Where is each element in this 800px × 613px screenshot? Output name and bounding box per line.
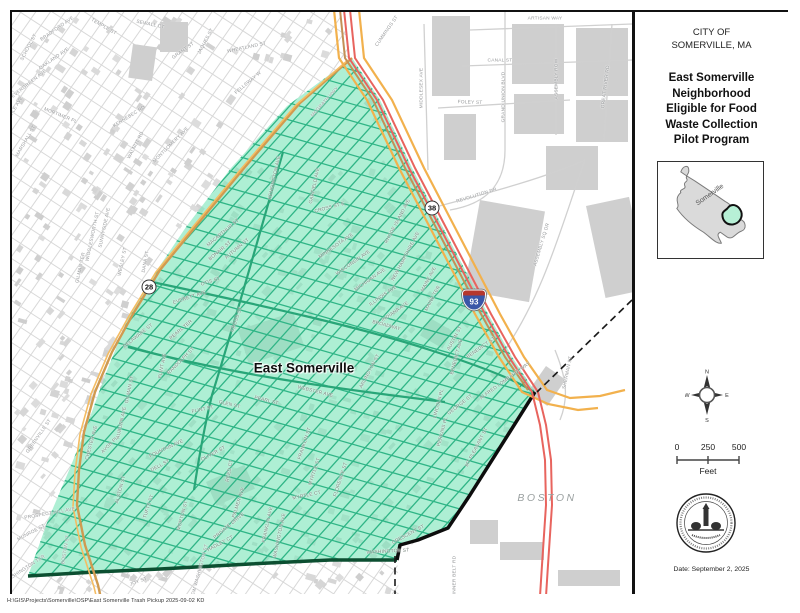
- street-label: ALFRED LOMBARDI WAY: [480, 362, 532, 402]
- street-label: GARFIELD AVE: [310, 168, 322, 205]
- street-label: CRESCENT ST: [392, 525, 426, 546]
- street-label: FOLEY ST: [458, 101, 483, 107]
- street-label: MORTON ST: [178, 501, 191, 532]
- inset-locator-map: Somerville: [657, 161, 764, 259]
- street-label: RANDOLPH ST: [167, 347, 196, 376]
- route-shield-38: 38: [425, 201, 440, 216]
- street-label: DELAWARE ST: [123, 324, 155, 350]
- scale-bar: 0 250 500 Feet: [663, 438, 755, 481]
- map-canvas: East Somerville BOSTON SCHOOL STBRADFORD…: [12, 12, 632, 594]
- street-label: AVON PL: [102, 437, 121, 456]
- street-label: CHESTER AVE: [86, 425, 100, 460]
- street-label: WHEATLAND ST: [227, 43, 267, 56]
- street-label: FLINT ST: [192, 406, 215, 415]
- street-label: SEWALL CT: [135, 21, 164, 32]
- street-label: KENNEBEC RD: [113, 106, 147, 130]
- map-sheet: East Somerville BOSTON SCHOOL STBRADFORD…: [0, 0, 800, 613]
- svg-text:0: 0: [675, 442, 680, 452]
- street-label: MARSHALL ST: [16, 125, 38, 158]
- map-title: East Somerville Neighborhood Eligible fo…: [635, 71, 788, 149]
- street-label: GRAND UNION BLVD: [503, 72, 508, 123]
- street-label: MICHIGAN AVE: [355, 269, 388, 294]
- area-label: East Somerville: [254, 361, 355, 376]
- street-label: ILLINOIS AVE: [369, 286, 398, 309]
- street-label: OTIS ST: [201, 278, 222, 289]
- street-label: MYRTLE ST: [309, 458, 322, 487]
- street-label: FELLSWAY W: [235, 72, 263, 97]
- compass-e: E: [725, 393, 729, 399]
- street-label: PERKINS PL: [438, 417, 450, 447]
- boston-label: BOSTON: [517, 492, 576, 504]
- street-label: DELL ST: [151, 460, 172, 474]
- street-label: BOSTON ST: [62, 535, 72, 565]
- street-label: ASSEMBLY ROW: [556, 59, 561, 100]
- street-label: WISCONSIN AVE: [336, 250, 372, 277]
- street-label: GREAT RIVER RD: [602, 65, 612, 108]
- street-label: TEMPLE ST: [89, 19, 116, 37]
- street-label: WALNUT RD: [128, 132, 146, 161]
- compass-rose: N S W E: [685, 369, 729, 428]
- street-label: ASSEMBLY SQ DR: [534, 223, 552, 267]
- street-label: MYRTLE CT: [292, 492, 321, 503]
- street-label: WEBSTER AVE: [297, 386, 333, 399]
- street-label: GILMAN TER: [76, 252, 87, 284]
- street-label: PROSPECT HILL AVE: [24, 508, 75, 522]
- city-line-1: CITY OF: [635, 26, 788, 39]
- city-seal: [674, 491, 738, 560]
- street-label: AUBURN AVE: [117, 407, 128, 440]
- date-label: Date: September 2, 2025: [635, 566, 788, 573]
- compass-w: W: [685, 393, 690, 399]
- street-label: FOUNTAIN AVE: [149, 440, 184, 460]
- street-label: ARTISAN WAY: [528, 18, 563, 23]
- svg-text:250: 250: [701, 442, 715, 452]
- panel-city: CITY OF SOMERVILLE, MA: [635, 26, 788, 52]
- street-label: MIDDLESEX AVE: [421, 68, 426, 109]
- route-shield-93: 93: [463, 291, 485, 310]
- street-label: MORTIMER PL: [43, 108, 78, 126]
- street-label: ARLINGTON ST: [360, 354, 382, 390]
- street-label: INDIANA AVE: [382, 302, 411, 324]
- street-label: WASHINGTON ST: [366, 549, 409, 556]
- street-label: GILMAN ST: [126, 376, 136, 404]
- street-label: MT PLEASANT ST: [466, 428, 491, 469]
- street-label: WASHINGTON AVE: [274, 513, 288, 559]
- street-label: BENEDICT ST: [467, 337, 497, 360]
- street-label: REVOLUTION DR: [456, 189, 498, 206]
- street-label: WESLEY ST: [119, 247, 130, 277]
- street-label: NEW HAMPSHIRE AVE: [392, 232, 422, 283]
- street-label: MAINE TER: [425, 286, 442, 313]
- map-labels-layer: East Somerville BOSTON SCHOOL STBRADFORD…: [12, 12, 632, 594]
- street-label: EVERETT AVE: [173, 291, 207, 306]
- street-label: TUFTS ST: [144, 495, 156, 520]
- street-label: BROADWAY: [371, 321, 400, 333]
- street-label: MCGRATH HWY: [311, 87, 340, 119]
- street-label: WIGGLESWORTH ST: [86, 212, 101, 263]
- street-label: ALSTON ST: [116, 476, 128, 505]
- street-label: OLIVER ST: [201, 447, 227, 464]
- street-label: BRADFORD AVE: [40, 17, 75, 44]
- title-panel: CITY OF SOMERVILLE, MA East Somerville N…: [632, 12, 788, 594]
- street-label: KENSINGTON AVE: [269, 156, 283, 201]
- street-label: GLEN ST: [218, 401, 240, 411]
- street-label: CROSS ST E: [314, 203, 345, 216]
- street-label: LINCOLN PL: [434, 389, 446, 419]
- street-label: GREENVILLE ST: [27, 419, 54, 455]
- street-label: WASHINGTON TER: [12, 555, 47, 584]
- scale-unit: Feet: [699, 466, 717, 476]
- street-label: FRANKLIN ST: [299, 427, 314, 460]
- street-label: INNER BELT RD: [454, 556, 459, 594]
- street-label: REED CT: [227, 460, 236, 483]
- street-label: MONTGOMERY AVE: [153, 127, 191, 165]
- street-label: JOY ST: [130, 578, 148, 589]
- compass-n: N: [705, 370, 709, 376]
- street-label: FLORENCE ST: [334, 462, 350, 498]
- street-label: GEORGE ST: [448, 395, 475, 417]
- street-label: FRANKLIN AVE: [263, 507, 275, 544]
- street-label: RHODE ISLAND AVE: [385, 199, 412, 245]
- route-shield-28: 28: [142, 280, 157, 295]
- street-label: DANA ST: [143, 251, 152, 273]
- street-label: HADLEY CT: [207, 536, 235, 554]
- file-path-text: H:\GIS\Projects\Somerville\OSP\East Some…: [7, 598, 204, 604]
- street-label: SCHOOL ST: [21, 34, 39, 62]
- street-label: SHERMAN ST: [563, 356, 575, 390]
- street-label: GRANT ST: [172, 43, 196, 62]
- street-label: CUMMINGS ST: [376, 16, 401, 48]
- street-label: FLINT AVE: [159, 353, 169, 379]
- street-label: CANAL ST: [488, 60, 513, 65]
- street-label: MINNESOTA AVE: [319, 233, 355, 260]
- street-label: PEARL ST: [253, 397, 278, 408]
- city-line-2: SOMERVILLE, MA: [635, 39, 788, 52]
- street-label: EVERGREEN AVE: [12, 70, 48, 100]
- street-label: CROSS ST: [231, 307, 244, 333]
- compass-s: S: [705, 418, 709, 423]
- street-label: PEARL TER: [170, 320, 195, 342]
- street-label: MUNROE ST: [17, 525, 46, 544]
- street-label: JAQUES ST: [198, 28, 216, 55]
- svg-text:500: 500: [732, 442, 746, 452]
